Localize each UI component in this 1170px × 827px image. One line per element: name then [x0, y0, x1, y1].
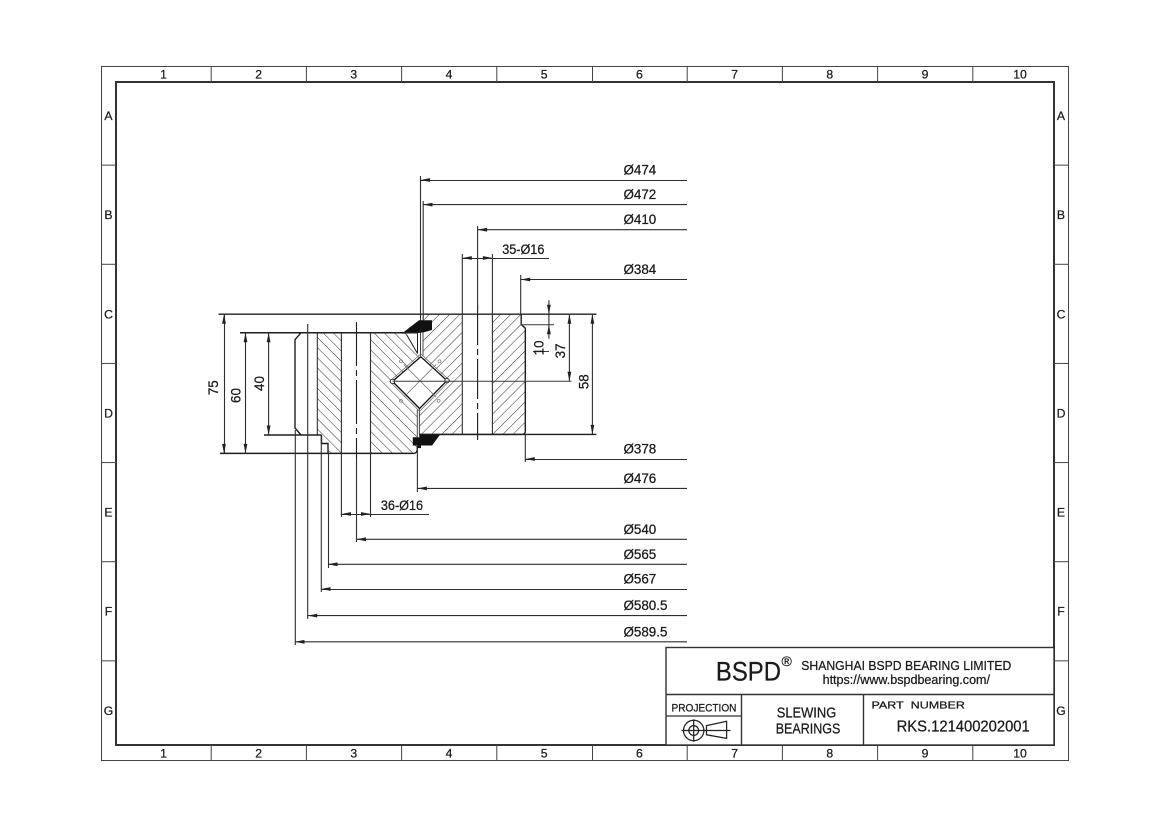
svg-text:10: 10 — [531, 340, 546, 355]
svg-text:5: 5 — [541, 747, 548, 761]
svg-text:Ø567: Ø567 — [624, 572, 657, 587]
svg-text:F: F — [105, 605, 112, 619]
svg-text:8: 8 — [826, 747, 833, 761]
svg-text:G: G — [104, 704, 113, 718]
svg-text:RKS.121400202001: RKS.121400202001 — [897, 719, 1030, 736]
svg-text:3: 3 — [350, 747, 357, 761]
svg-text:10: 10 — [1013, 68, 1027, 82]
svg-text:D: D — [104, 406, 113, 420]
svg-text:Ø378: Ø378 — [624, 442, 657, 457]
svg-text:A: A — [1057, 109, 1066, 123]
svg-text:35-Ø16: 35-Ø16 — [502, 242, 544, 257]
svg-text:9: 9 — [922, 747, 929, 761]
svg-text:7: 7 — [731, 747, 738, 761]
svg-text:7: 7 — [731, 68, 738, 82]
svg-text:1: 1 — [160, 747, 167, 761]
svg-text:Ø410: Ø410 — [624, 212, 657, 227]
svg-text:C: C — [1057, 307, 1066, 321]
svg-text:Ø589.5: Ø589.5 — [624, 624, 668, 639]
svg-text:60: 60 — [228, 388, 243, 403]
svg-text:G: G — [1056, 704, 1065, 718]
svg-text:1: 1 — [160, 68, 167, 82]
svg-text:Ø384: Ø384 — [624, 262, 657, 277]
svg-text:58: 58 — [577, 374, 592, 389]
svg-text:Ø565: Ø565 — [624, 547, 657, 562]
svg-text:6: 6 — [636, 747, 643, 761]
svg-text:E: E — [104, 506, 112, 520]
svg-text:®: ® — [782, 653, 793, 669]
svg-text:Ø474: Ø474 — [624, 163, 657, 178]
svg-text:4: 4 — [446, 68, 453, 82]
svg-text:Ø540: Ø540 — [624, 522, 657, 537]
svg-text:Ø476: Ø476 — [624, 471, 657, 486]
svg-text:Ø580.5: Ø580.5 — [624, 598, 668, 613]
svg-text:40: 40 — [252, 376, 267, 391]
svg-text:BEARINGS: BEARINGS — [776, 721, 841, 737]
svg-text:36-Ø16: 36-Ø16 — [381, 498, 423, 513]
svg-text:PART NUMBER: PART NUMBER — [872, 700, 966, 711]
svg-text:B: B — [1057, 208, 1065, 222]
svg-text:75: 75 — [206, 380, 221, 395]
svg-text:6: 6 — [636, 68, 643, 82]
svg-text:A: A — [104, 109, 113, 123]
svg-text:8: 8 — [826, 68, 833, 82]
svg-text:C: C — [104, 307, 113, 321]
svg-text:4: 4 — [446, 747, 453, 761]
svg-text:E: E — [1057, 506, 1065, 520]
svg-text:2: 2 — [255, 68, 262, 82]
svg-text:10: 10 — [1013, 747, 1027, 761]
svg-text:https://www.bspdbearing.com/: https://www.bspdbearing.com/ — [823, 672, 991, 687]
svg-text:3: 3 — [350, 68, 357, 82]
svg-text:9: 9 — [922, 68, 929, 82]
svg-text:BSPD: BSPD — [716, 656, 781, 686]
svg-text:B: B — [104, 208, 112, 222]
svg-text:SHANGHAI BSPD BEARING LIMITED: SHANGHAI BSPD BEARING LIMITED — [801, 658, 1011, 673]
svg-text:F: F — [1057, 605, 1064, 619]
svg-text:D: D — [1057, 406, 1066, 420]
svg-text:PROJECTION: PROJECTION — [672, 702, 737, 714]
svg-text:37: 37 — [553, 343, 568, 358]
svg-text:2: 2 — [255, 747, 262, 761]
svg-text:Ø472: Ø472 — [624, 187, 657, 202]
svg-text:SLEWING: SLEWING — [777, 706, 837, 722]
svg-text:5: 5 — [541, 68, 548, 82]
